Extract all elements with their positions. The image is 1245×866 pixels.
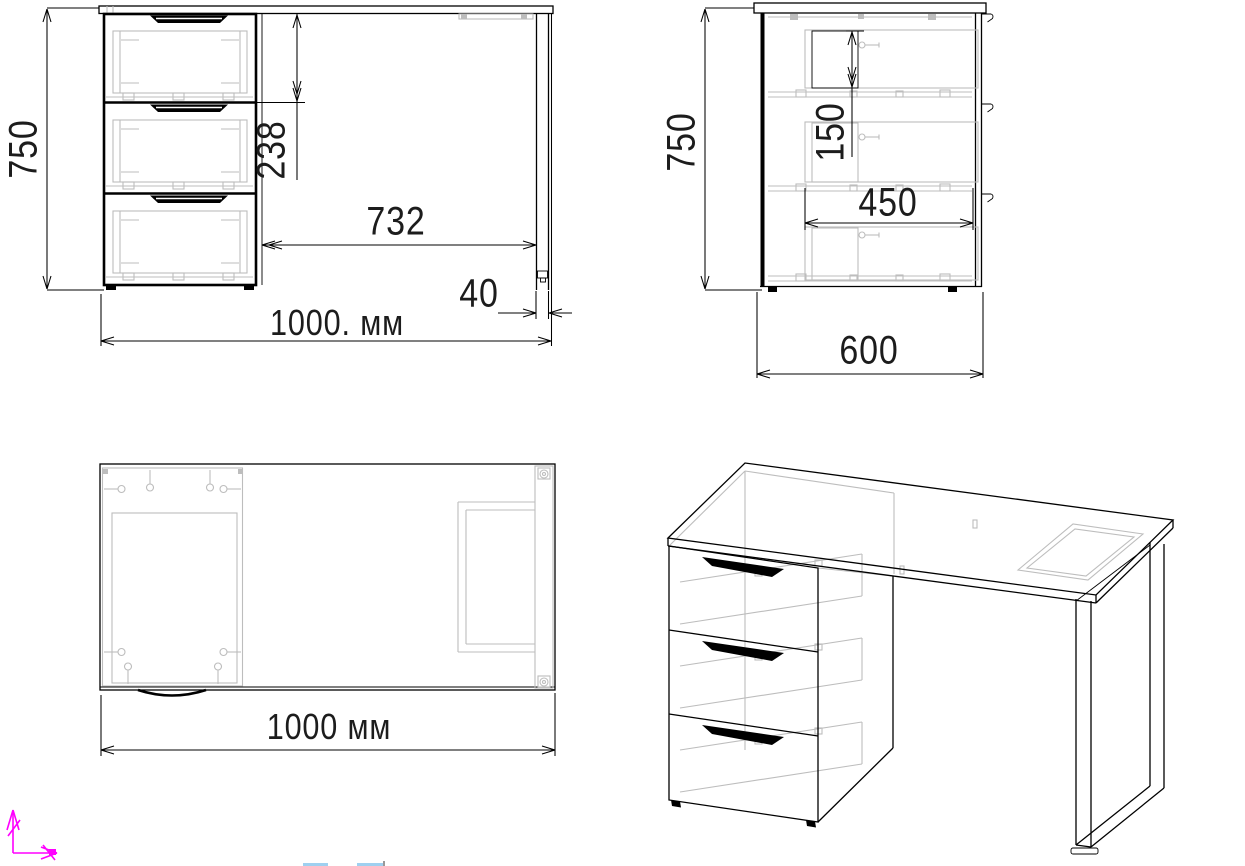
- drawer-handle: [150, 196, 228, 204]
- dim-front-drawer-pitch: 238: [250, 120, 295, 179]
- top-leg-frame: [458, 466, 553, 688]
- drawer-handle-side: [981, 104, 993, 112]
- dim-side-depth: 600: [839, 329, 898, 374]
- front-drawer-cabinet: [104, 14, 262, 290]
- front-leg: [537, 14, 549, 290]
- dim-front-total-width: 1000. мм: [270, 302, 404, 344]
- drawer-handle: [150, 105, 228, 113]
- cad-drawing-canvas: 750 238 732 40 1000. мм 750 150 450 600 …: [0, 0, 1245, 866]
- cropped-ui-fragment: [383, 861, 385, 866]
- iso-tabletop: [668, 463, 1173, 595]
- drawer-handle-iso: [702, 641, 784, 661]
- dim-side-height: 750: [660, 112, 705, 171]
- side-view: [701, 3, 993, 378]
- side-view-dimensions: [701, 8, 983, 378]
- iso-drawer-cabinet: [669, 546, 893, 828]
- dim-front-height: 750: [2, 119, 47, 178]
- drawer-handle-top: [138, 690, 206, 696]
- dim-side-slide-length: 450: [858, 181, 917, 226]
- drawer-handle: [150, 16, 228, 24]
- dim-side-drawer-inner: 150: [809, 102, 854, 161]
- dim-front-leg-width: 40: [459, 272, 499, 317]
- drawer-handle-iso: [702, 725, 784, 745]
- drawing-linework: [0, 0, 1245, 866]
- dim-front-knee-span: 732: [366, 200, 425, 245]
- drawer-handle-side: [981, 14, 993, 22]
- drawer-handle-side: [981, 194, 993, 202]
- isometric-view: [668, 463, 1173, 854]
- dim-top-total-width: 1000 мм: [267, 706, 392, 748]
- ucs-axis-icon: [7, 810, 57, 860]
- iso-leg-frame: [1071, 542, 1164, 854]
